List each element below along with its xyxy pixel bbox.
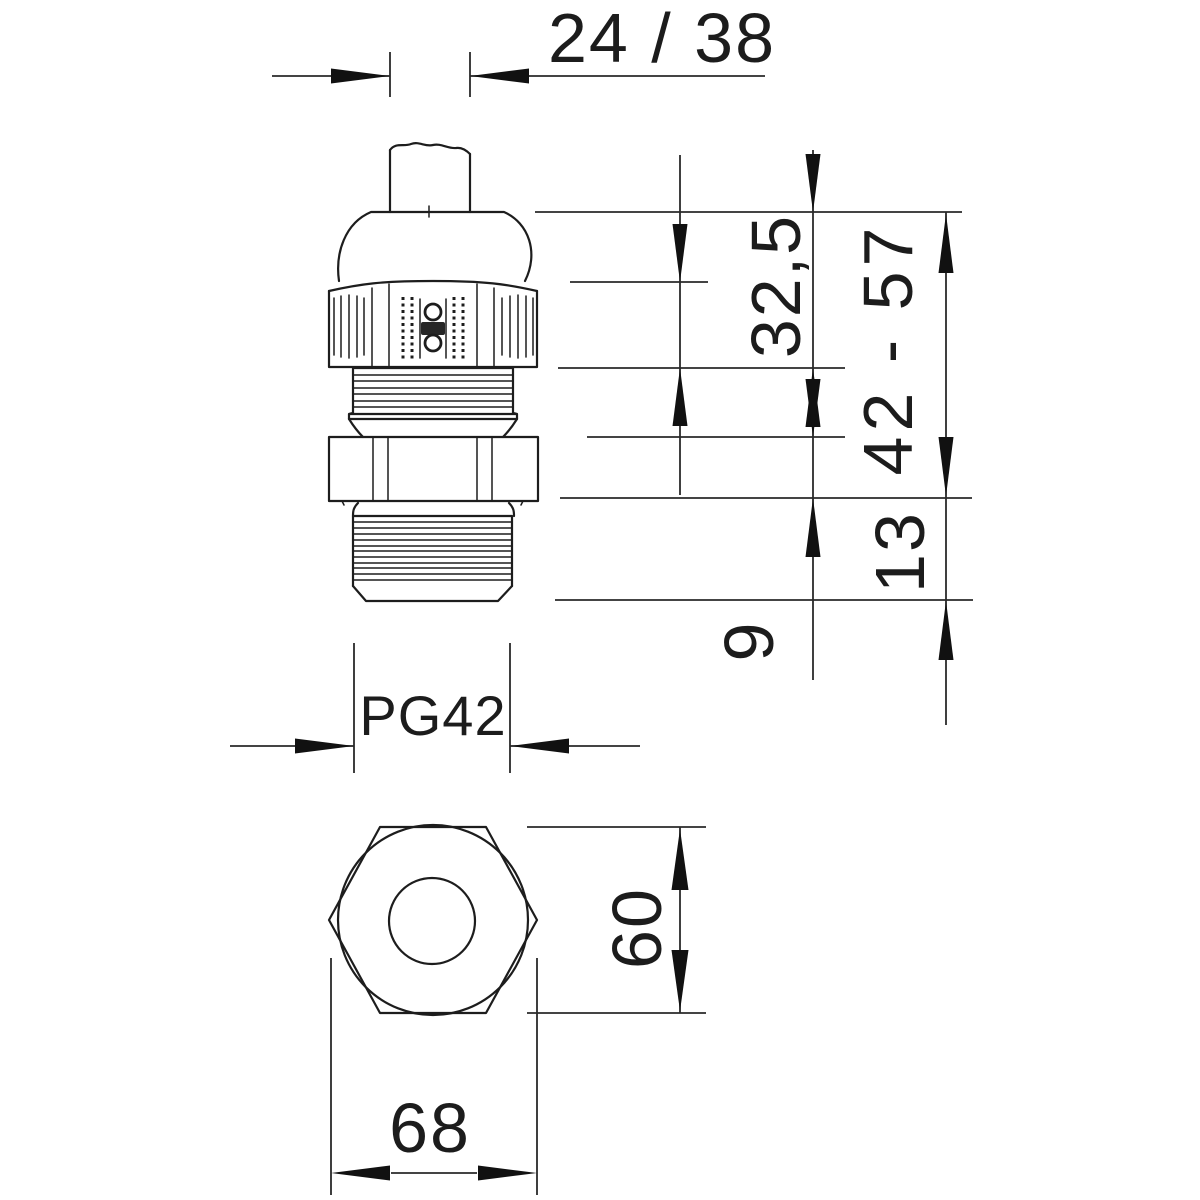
nut-logo-mark-top bbox=[425, 304, 441, 320]
upper-thread bbox=[349, 368, 517, 437]
arrowhead bbox=[939, 214, 954, 273]
label-offset: 9 bbox=[714, 621, 784, 662]
arrowhead bbox=[673, 368, 688, 426]
technical-drawing-canvas: 24 / 38 32,5 42 - 57 13 9 PG42 60 68 bbox=[0, 0, 1200, 1200]
nut-logo-block bbox=[421, 322, 445, 335]
arrowhead bbox=[295, 739, 354, 754]
dim-line-a bbox=[673, 155, 688, 495]
label-top-width: 24 / 38 bbox=[548, 3, 776, 73]
label-across-corners: 68 bbox=[389, 1093, 471, 1163]
front-view bbox=[329, 825, 537, 1015]
label-across-flats: 60 bbox=[602, 887, 672, 969]
label-cap-height: 32,5 bbox=[741, 214, 811, 358]
arrowhead bbox=[939, 437, 954, 496]
hexagon-outline bbox=[329, 827, 537, 1013]
body-circle bbox=[338, 825, 528, 1015]
arrowhead bbox=[672, 829, 689, 890]
label-lock-nut-height: 13 bbox=[865, 511, 935, 593]
label-height-range: 42 - 57 bbox=[853, 223, 923, 476]
arrowhead bbox=[806, 379, 821, 437]
arrowhead bbox=[331, 69, 390, 84]
label-thread-size: PG42 bbox=[359, 688, 506, 744]
lower-thread bbox=[353, 516, 512, 601]
arrowhead bbox=[673, 224, 688, 282]
knurled-nut bbox=[329, 281, 537, 367]
dim-line-c bbox=[939, 212, 954, 725]
middle-hex-nut bbox=[329, 437, 538, 516]
cable-stub bbox=[390, 143, 470, 212]
arrowhead bbox=[939, 601, 954, 660]
arrowhead bbox=[470, 69, 529, 84]
dome-cap bbox=[338, 206, 531, 281]
arrowhead bbox=[331, 1166, 390, 1181]
drawing-linework bbox=[0, 0, 1200, 1200]
arrowhead bbox=[806, 498, 821, 557]
nut-logo-mark-bottom bbox=[425, 335, 441, 351]
cable-hole-circle bbox=[389, 878, 475, 964]
arrowhead bbox=[510, 739, 569, 754]
arrowhead bbox=[478, 1166, 537, 1181]
side-view bbox=[329, 143, 538, 601]
arrowhead bbox=[806, 154, 821, 212]
